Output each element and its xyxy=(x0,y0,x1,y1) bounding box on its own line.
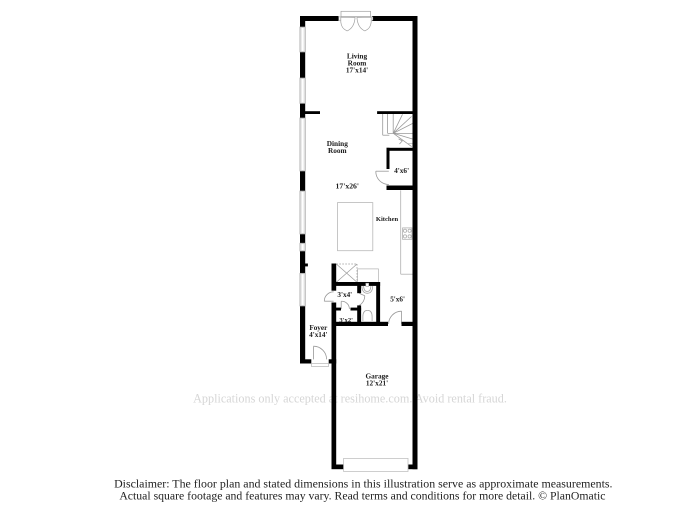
svg-text:4'x14': 4'x14' xyxy=(309,331,327,339)
svg-text:Actual square footage and feat: Actual square footage and features may v… xyxy=(119,490,605,503)
svg-text:3'x4': 3'x4' xyxy=(337,291,352,299)
svg-text:Kitchen: Kitchen xyxy=(376,216,399,223)
svg-text:5'x6': 5'x6' xyxy=(390,296,405,304)
svg-text:Room: Room xyxy=(328,146,347,155)
svg-text:17'x26': 17'x26' xyxy=(336,182,360,191)
svg-text:12'x21': 12'x21' xyxy=(366,379,388,388)
svg-text:3'x2': 3'x2' xyxy=(339,317,353,324)
svg-text:17'x14': 17'x14' xyxy=(346,66,368,75)
svg-text:Applications only accepted at: Applications only accepted at resihome.c… xyxy=(193,392,507,406)
svg-text:Disclaimer: The floor plan and: Disclaimer: The floor plan and stated di… xyxy=(114,476,612,490)
svg-text:4'x6': 4'x6' xyxy=(394,166,409,175)
